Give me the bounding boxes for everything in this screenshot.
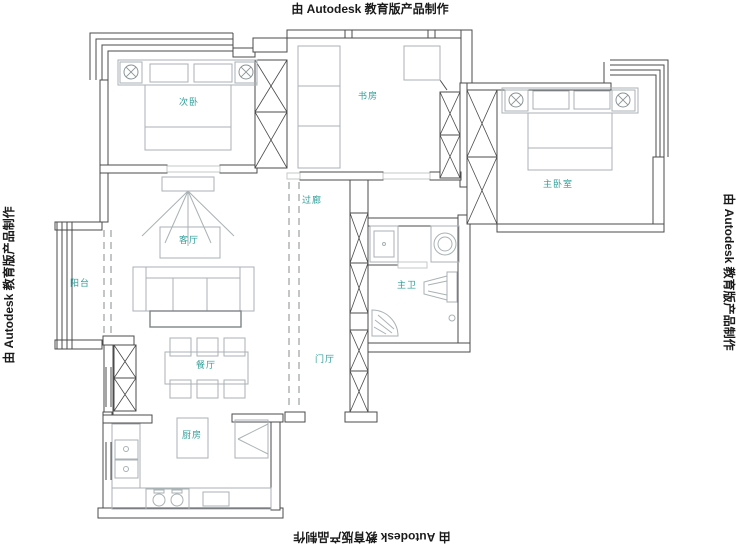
study-furniture [298,46,440,168]
tv-cabinet [162,177,214,191]
bed [528,113,612,170]
room-label-master-bedroom: 主卧室 [543,180,573,189]
tray [203,492,229,506]
watermark-left: 由 Autodesk 教育版产品制作 [1,175,17,395]
cabinet [404,46,440,80]
bookshelf [298,46,340,168]
burner [153,494,165,506]
toilet-tank [447,272,457,302]
sink-basin [115,460,138,478]
room-label-entry-hall: 门厅 [315,355,335,364]
bed-headboard [502,88,638,113]
master-bedroom-furniture [502,88,638,170]
sofa [133,267,254,311]
chair [197,380,218,398]
room-label-kitchen: 厨房 [182,431,202,440]
sink-basin [115,440,138,459]
room-label-living-room: 客厅 [179,236,199,245]
pillow [194,64,232,82]
floor-plan-page: 次卧 书房 主卧室 过廊 客厅 阳台 主卫 门厅 餐厅 厨房 由 Autodes… [0,0,740,550]
toilet-bowl [424,276,447,300]
watermark-right: 由 Autodesk 教育版产品制作 [721,162,737,382]
wash-basin [374,231,394,257]
chair [170,338,191,356]
room-label-master-bath: 主卫 [397,281,417,290]
living-room-furniture [133,177,254,327]
watermark-bottom: 由 Autodesk 教育版产品制作 [262,529,482,545]
chair [224,338,245,356]
fridge [235,420,268,458]
chair [224,380,245,398]
room-label-corridor: 过廊 [302,196,322,205]
watermark-top: 由 Autodesk 教育版产品制作 [260,1,480,17]
sofa-seat [150,311,241,327]
burner [171,494,183,506]
room-label-dining-room: 餐厅 [196,361,216,370]
counter [112,488,271,509]
wardrobe-columns [114,60,497,412]
washing-machine [431,226,459,262]
floor-drain [449,315,455,321]
pillow [150,64,188,82]
bed [145,85,231,150]
chair [170,380,191,398]
room-label-balcony: 阳台 [70,279,90,288]
floor-plan-drawing [0,0,740,550]
chair [197,338,218,356]
pillow [574,91,610,109]
room-label-study: 书房 [358,92,378,101]
pillow [533,91,569,109]
room-label-secondary-bedroom: 次卧 [179,98,199,107]
shower [372,310,398,336]
